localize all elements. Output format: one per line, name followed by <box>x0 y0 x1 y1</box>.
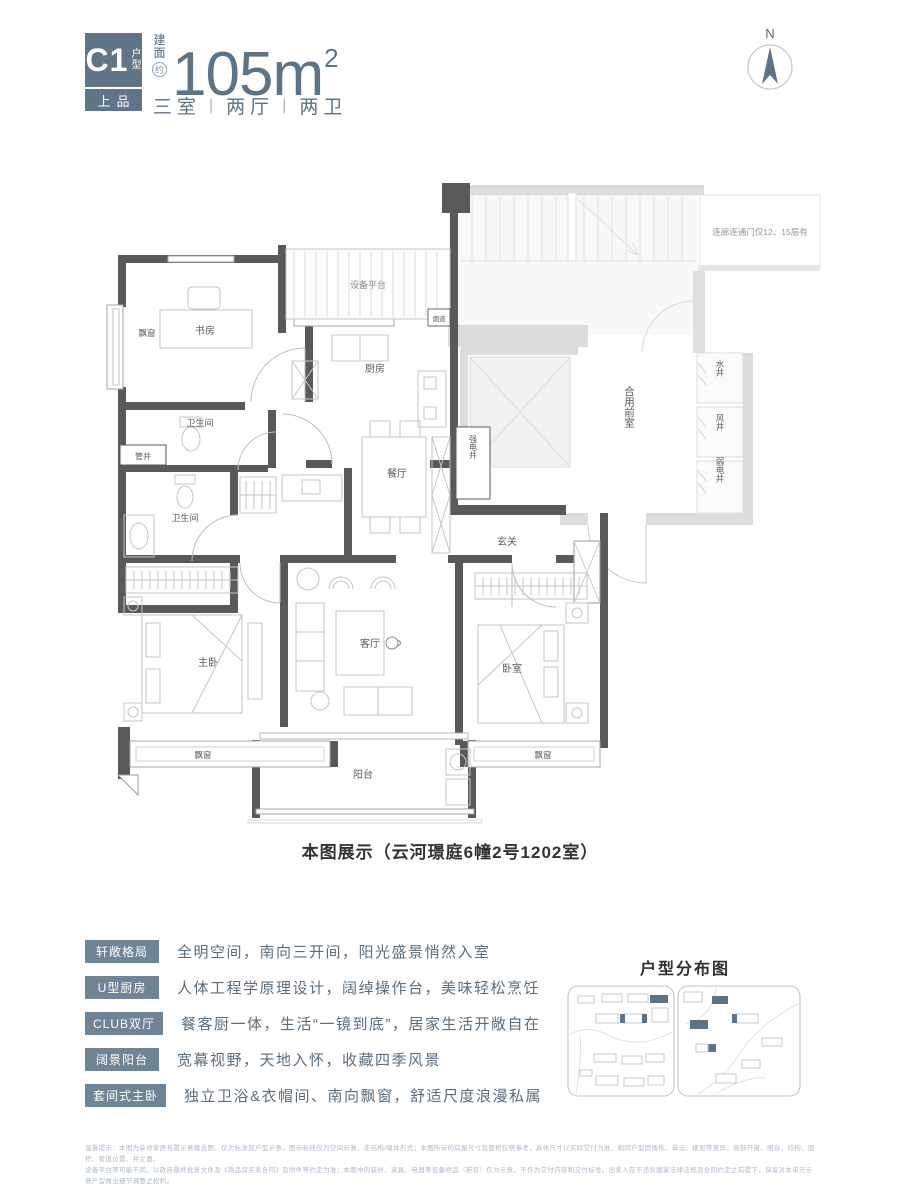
room-label: 厨房 <box>365 362 385 375</box>
room-label: 卧室 <box>502 662 522 675</box>
room-label: 管井 <box>135 451 151 461</box>
feature-tag: 套间式主卧 <box>85 1084 166 1107</box>
corridor-note: 连廊连通门仅12、15层有 <box>712 227 807 237</box>
unit-badge: C1 户 型 上品 <box>85 33 142 111</box>
room-label: 飘窗 <box>138 328 155 338</box>
unit-code-box: C1 户 型 <box>85 33 142 87</box>
kettle-icon <box>386 637 401 649</box>
feature-tag: 阔景阳台 <box>85 1048 159 1071</box>
rooms-summary: 三室 | 两厅 | 两卫 <box>153 92 347 119</box>
shared-core <box>442 185 820 583</box>
room-label: 餐厅 <box>387 467 407 480</box>
room-label: 卫生间 <box>186 417 213 428</box>
corner-block <box>118 775 138 795</box>
room-label: 书房 <box>195 324 215 337</box>
feature-desc: 宽幕视野，天地入怀，收藏四季风景 <box>177 1049 441 1070</box>
unit-type-label: 户 型 <box>131 49 141 71</box>
room-label: 阳台 <box>353 768 373 781</box>
area-prefix: 建 面 约 <box>152 34 167 77</box>
feature-desc: 全明空间，南向三开间，阳光盛景悄然入室 <box>177 941 491 962</box>
feature-row: 阔景阳台 宽幕视野，天地入怀，收藏四季风景 <box>85 1048 542 1071</box>
room-label: 客厅 <box>360 637 380 650</box>
summary-divider: | <box>282 97 291 115</box>
feature-desc: 餐客厨一体，生活“一镜到底”，居家生活开敞自在 <box>181 1013 541 1034</box>
room-label: 弱电井 <box>715 457 725 483</box>
feature-list: 轩敞格局 全明空间，南向三开间，阳光盛景悄然入室 U型厨房 人体工程学原理设计，… <box>85 940 542 1120</box>
feature-tag: U型厨房 <box>85 976 159 999</box>
feature-tag: 轩敞格局 <box>85 940 159 963</box>
compass: N <box>741 26 799 97</box>
room-label: 烟道 <box>433 314 447 323</box>
feature-row: CLUB双厅 餐客厨一体，生活“一镜到底”，居家生活开敞自在 <box>85 1012 542 1035</box>
sitemap-diagram <box>566 982 802 1100</box>
badge-bottom: 上品 <box>85 89 142 111</box>
feature-row: 轩敞格局 全明空间，南向三开间，阳光盛景悄然入室 <box>85 940 542 963</box>
feature-tag: CLUB双厅 <box>85 1012 163 1035</box>
disclaimer: 温馨提示：本图为装修家居布置示意概念图，仅为标准层户型示意，图示标线仅为空间示意… <box>85 1143 817 1187</box>
feature-desc: 人体工程学原理设计，阔绰操作台，美味轻松烹饪 <box>177 977 540 998</box>
approx-circle: 约 <box>152 62 167 77</box>
feature-row: 套间式主卧 独立卫浴&衣帽间、南向飘窗，舒适尺度浪漫私属 <box>85 1084 542 1107</box>
disclaimer-line1: 温馨提示：本图为装修家居布置示意概念图，仅为标准层户型示意，图示标线仅为空间示意… <box>85 1143 817 1165</box>
room-label: 合用前室 <box>623 385 635 428</box>
room-label: 卫生间 <box>171 512 198 523</box>
room-label: 飘窗 <box>194 750 211 760</box>
room-label: 玄关 <box>497 535 517 548</box>
room-label: 风井 <box>715 414 725 432</box>
room-label: 主卧 <box>198 656 218 669</box>
sitemap-title: 户型分布图 <box>570 955 800 979</box>
feature-row: U型厨房 人体工程学原理设计，阔绰操作台，美味轻松烹饪 <box>85 976 542 999</box>
summary-divider: | <box>209 97 218 115</box>
room-label: 飘窗 <box>534 750 551 760</box>
compass-n-label: N <box>741 26 799 41</box>
disclaimer-line2: 设备平台等可能不同，以政府最终批复文件及《商品房买卖合同》及附件等约定为准；本图… <box>85 1165 817 1187</box>
room-label: 设备平台 <box>350 279 386 290</box>
floor-plan: 飘窗 书房 设备平台 烟道 厨房 卫生间 管井 卫生间 餐厅 强电井 玄关 合用… <box>80 175 840 830</box>
unit-code: C1 <box>86 42 129 79</box>
plan-caption: 本图展示（云河璟庭6幢2号1202室） <box>0 838 900 863</box>
room-label: 水井 <box>715 359 725 378</box>
feature-desc: 独立卫浴&衣帽间、南向飘窗，舒适尺度浪漫私属 <box>184 1085 542 1106</box>
north-arrow-icon <box>745 42 795 92</box>
room-label: 强电井 <box>469 435 478 460</box>
